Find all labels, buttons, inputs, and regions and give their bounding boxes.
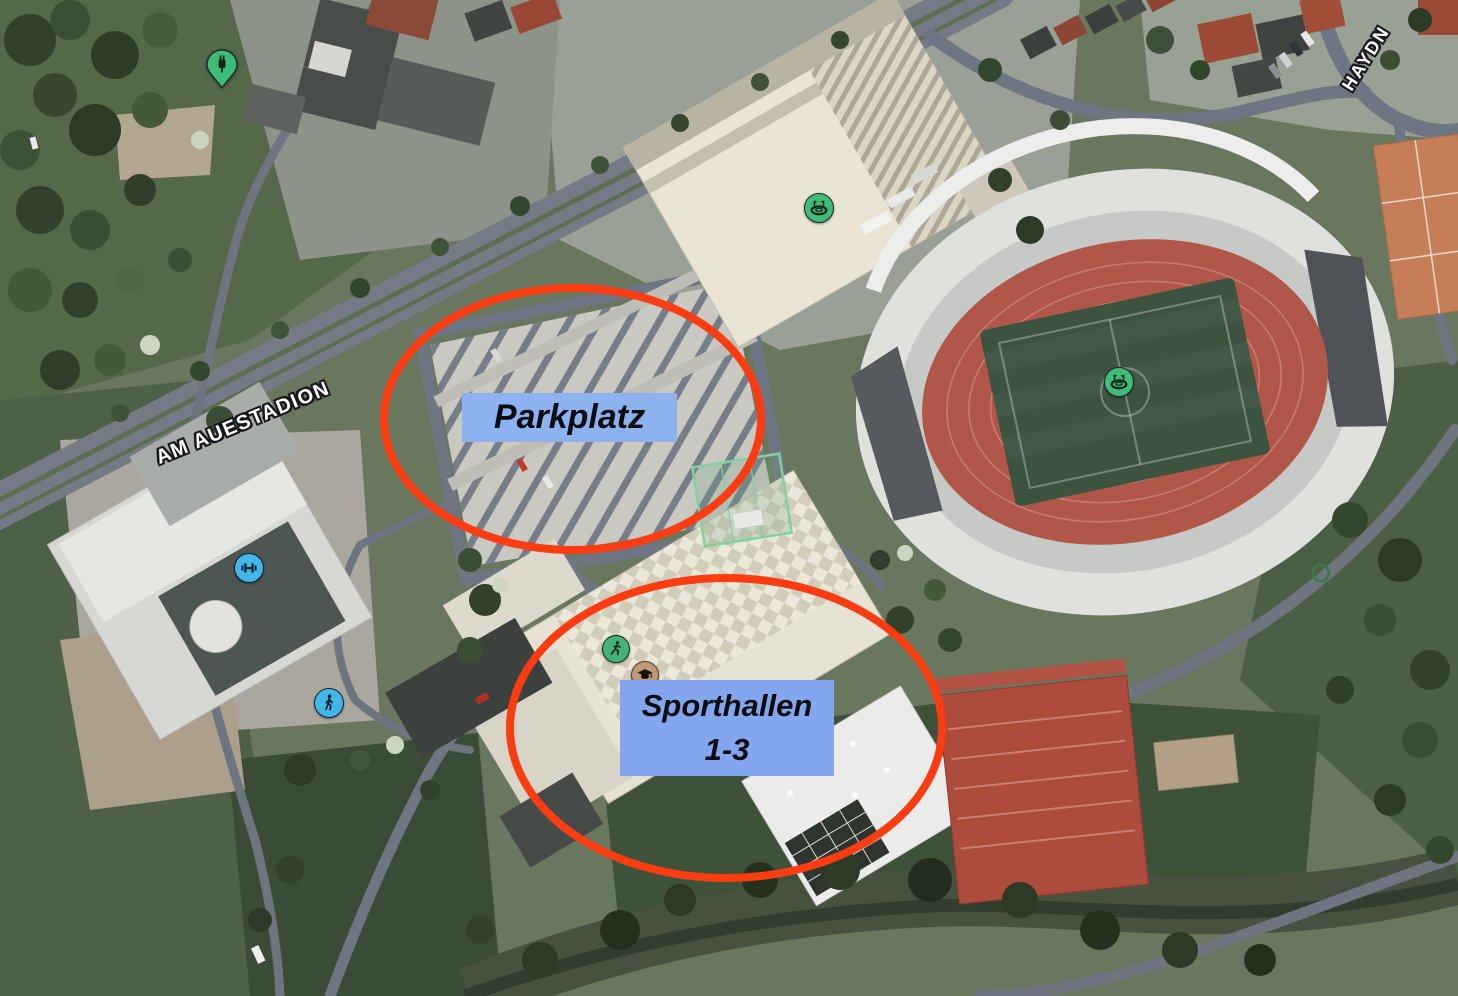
sporthallen-label-line2: 1-3 xyxy=(620,728,834,772)
pedestrian-icon[interactable] xyxy=(314,688,344,718)
sporthallen-label: Sporthallen 1-3 xyxy=(620,680,834,776)
parkplatz-label-text: Parkplatz xyxy=(494,398,645,437)
parkplatz-label: Parkplatz xyxy=(462,393,677,442)
stadium-icon[interactable] xyxy=(1104,367,1134,397)
satellite-imagery xyxy=(0,0,1458,996)
ev-charging-station-icon[interactable] xyxy=(206,49,238,89)
fitness-dumbbell-icon[interactable] xyxy=(234,553,264,583)
green-training-court xyxy=(692,454,791,547)
sporthallen-label-line1: Sporthallen xyxy=(620,684,834,728)
running-track-icon[interactable] xyxy=(602,635,630,663)
stadium-icon[interactable] xyxy=(804,193,834,223)
map-canvas[interactable]: Parkplatz Sporthallen 1-3 AM AUESTADION … xyxy=(0,0,1458,996)
